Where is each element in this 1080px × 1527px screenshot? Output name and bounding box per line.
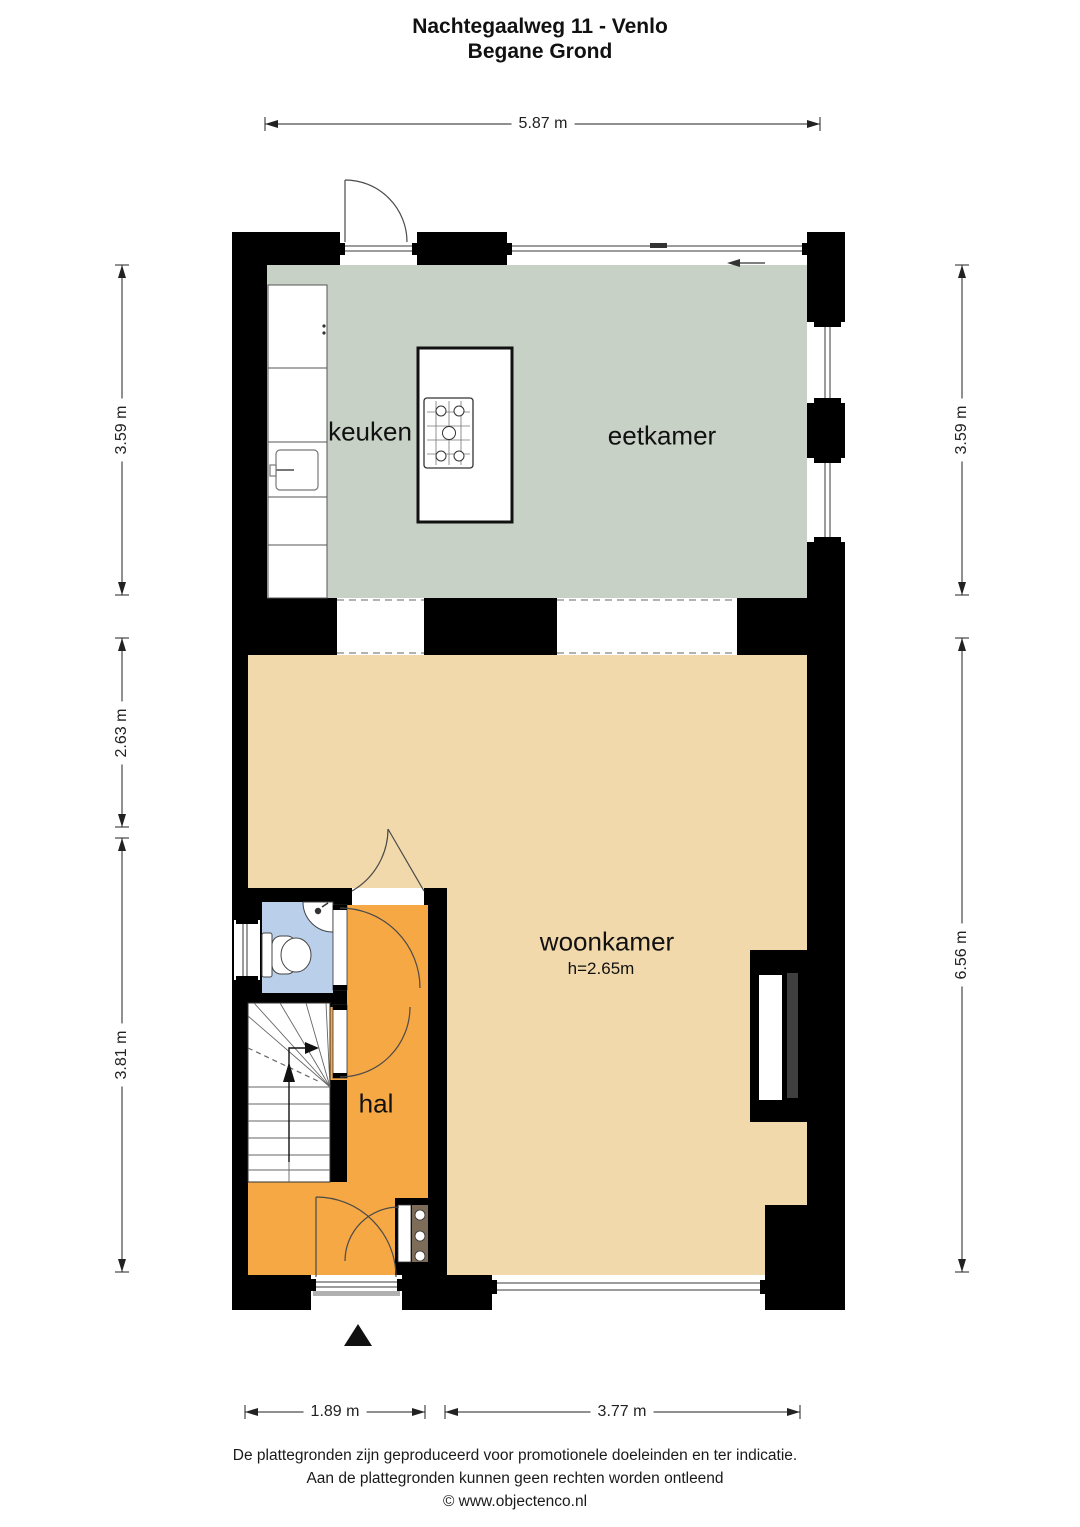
meter-cupboard	[412, 1205, 428, 1262]
right-window-2	[810, 458, 845, 542]
dim-bottom-right: 3.77 m	[591, 1403, 654, 1421]
dim-right-top: 3.59 m	[953, 399, 971, 462]
disclaimer: De plattegronden zijn geproduceerd voor …	[0, 1444, 1030, 1513]
floorplan-drawing	[0, 0, 1080, 1527]
divider-wall	[232, 598, 845, 655]
fireplace	[750, 950, 810, 1122]
room-label-hal: hal	[359, 1089, 394, 1120]
kitchen-island	[418, 348, 512, 522]
kitchen-counter	[268, 285, 327, 598]
top-sliding-window	[507, 232, 807, 267]
disclaimer-line-1: De plattegronden zijn geproduceerd voor …	[0, 1444, 1030, 1467]
toilet-window	[234, 920, 260, 980]
dim-bottom-left: 1.89 m	[304, 1403, 367, 1421]
living-door-opening	[352, 888, 424, 905]
room-label-keuken: keuken	[328, 417, 412, 448]
room-label-woonkamer: woonkamer	[540, 927, 674, 958]
cooktop-icon	[424, 398, 473, 468]
top-entry-door-opening	[340, 232, 417, 265]
dim-left-top: 3.59 m	[113, 399, 131, 462]
hall-living-wall	[428, 888, 447, 1205]
right-window-1	[810, 322, 845, 403]
dim-left-middle: 2.63 m	[113, 702, 131, 765]
front-door-opening	[311, 1275, 402, 1310]
dim-right-bottom: 6.56 m	[953, 924, 971, 987]
disclaimer-line-3: © www.objectenco.nl	[0, 1490, 1030, 1513]
dim-top: 5.87 m	[512, 115, 575, 133]
room-label-eetkamer: eetkamer	[608, 421, 716, 452]
dim-left-bottom: 3.81 m	[113, 1024, 131, 1087]
bottom-window	[492, 1275, 765, 1310]
entrance-marker-icon	[344, 1324, 372, 1346]
disclaimer-line-2: Aan de plattegronden kunnen geen rechten…	[0, 1467, 1030, 1490]
room-height-woonkamer: h=2.65m	[568, 959, 635, 979]
floorplan-page: Nachtegaalweg 11 - Venlo Begane Grond	[0, 0, 1080, 1527]
